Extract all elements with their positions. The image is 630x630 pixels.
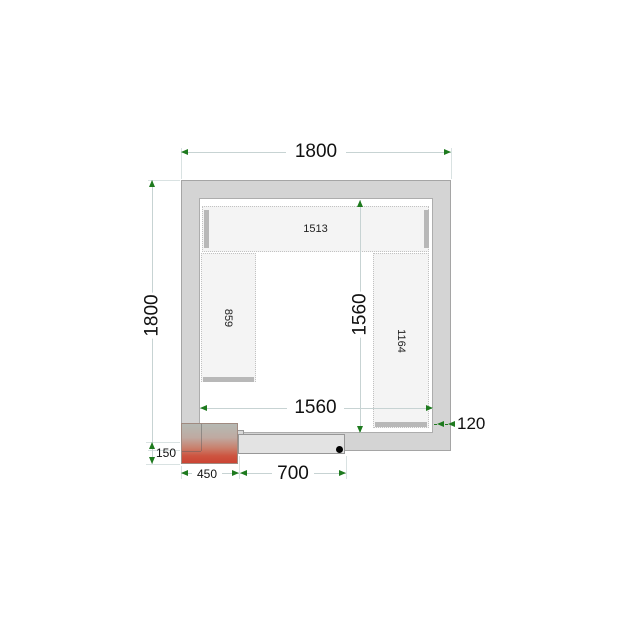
cooling-unit <box>181 423 238 464</box>
door-handle-dot <box>336 446 343 453</box>
shelf-top-label: 1513 <box>202 206 429 252</box>
floor-plan-canvas: 1513 859 1164 1800 1800 1560 1560 120 <box>0 0 630 630</box>
dim-arrow-right-icon <box>444 149 451 155</box>
dim-arrow-right-icon <box>232 470 239 476</box>
dim-arrow-left-icon <box>448 421 455 427</box>
dim-label-unit-offset: 150 <box>153 446 179 460</box>
dim-ext-line <box>346 456 347 479</box>
dim-arrow-left-icon <box>240 470 247 476</box>
dim-arrow-left-icon <box>181 149 188 155</box>
dim-label-inner-width: 1560 <box>287 397 344 418</box>
dim-arrow-left-icon <box>181 470 188 476</box>
shelf-left-label: 859 <box>201 253 256 382</box>
dim-arrow-down-icon <box>357 426 363 433</box>
dim-arrow-right-icon <box>339 470 346 476</box>
dim-label-unit-width: 450 <box>192 466 222 481</box>
dim-ext-line <box>146 464 180 465</box>
dim-label-inner-height: 1560 <box>348 284 372 344</box>
dim-arrow-right-icon <box>426 405 433 411</box>
dim-label-wall-thickness: 120 <box>457 412 499 434</box>
dim-arrow-up-icon <box>149 180 155 187</box>
dim-arrow-up-icon <box>357 200 363 207</box>
dim-label-door-width: 700 <box>272 461 314 485</box>
wall-corner-line-vertical <box>201 424 202 451</box>
wall-corner-line-horizontal <box>182 451 201 452</box>
shelf-right-label: 1164 <box>373 253 429 428</box>
dim-label-top-width: 1800 <box>286 141 346 162</box>
dim-arrow-left-icon <box>200 405 207 411</box>
dim-arrow-left-icon <box>437 421 444 427</box>
dim-label-left-height: 1800 <box>140 284 164 346</box>
door-panel <box>238 434 345 454</box>
dim-ext-line <box>451 148 452 179</box>
